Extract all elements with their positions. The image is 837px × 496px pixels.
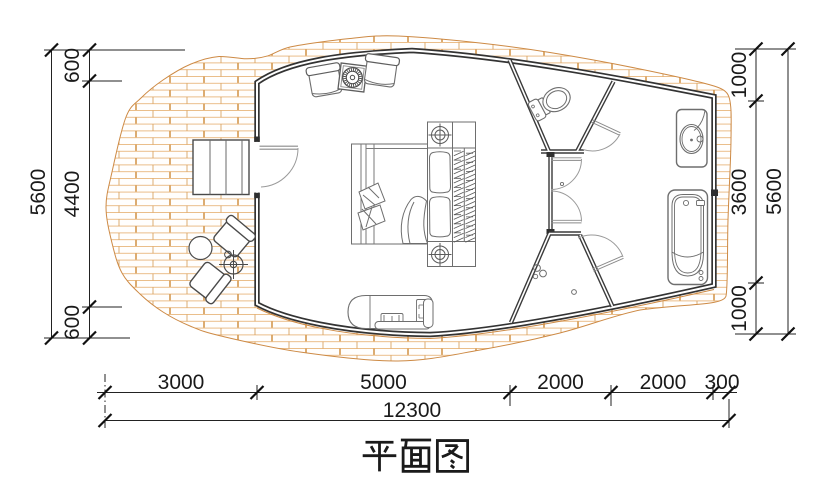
- svg-text:300: 300: [704, 371, 739, 394]
- svg-text:2000: 2000: [640, 371, 687, 394]
- svg-text:2000: 2000: [537, 371, 584, 394]
- svg-text:3000: 3000: [158, 371, 205, 394]
- svg-text:3600: 3600: [728, 169, 751, 216]
- svg-text:1000: 1000: [728, 285, 751, 332]
- svg-text:5600: 5600: [763, 168, 786, 215]
- svg-text:1000: 1000: [728, 52, 751, 99]
- svg-text:5000: 5000: [360, 371, 407, 394]
- svg-text:4400: 4400: [61, 171, 84, 218]
- svg-text:12300: 12300: [383, 399, 441, 422]
- svg-text:5600: 5600: [27, 169, 50, 216]
- svg-text:600: 600: [61, 305, 84, 340]
- svg-text:600: 600: [61, 48, 84, 83]
